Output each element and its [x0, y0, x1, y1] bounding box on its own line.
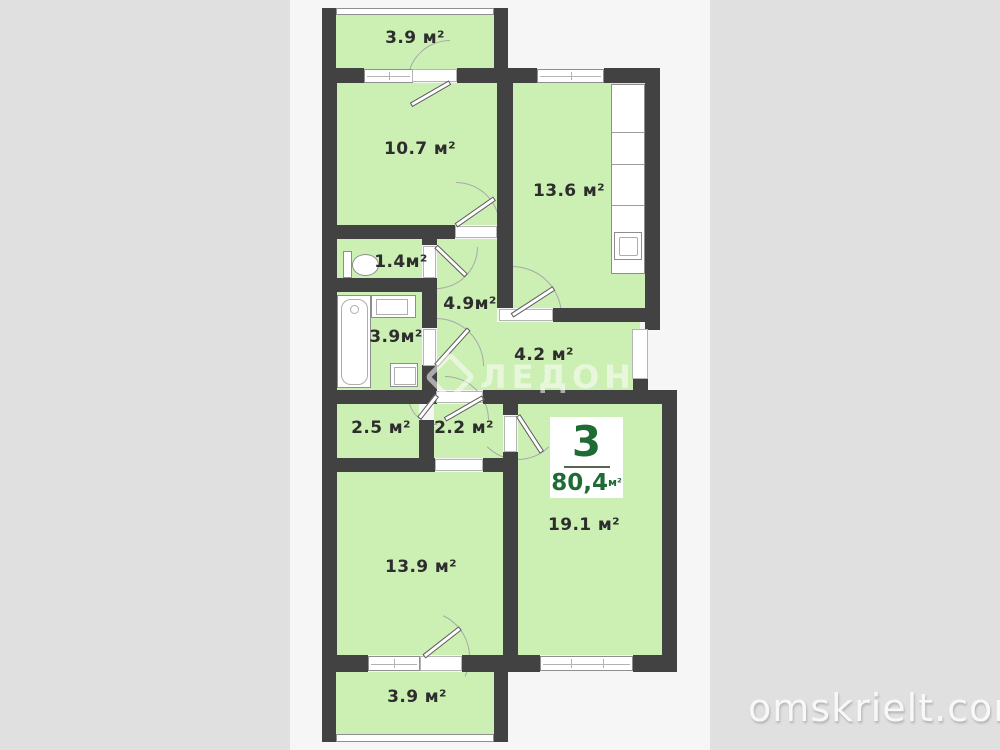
balcony-post — [322, 8, 336, 68]
door-opening — [420, 656, 462, 671]
wall — [322, 68, 337, 672]
wall — [337, 225, 455, 239]
wall — [419, 420, 434, 458]
door-opening — [435, 459, 483, 471]
balcony-post — [494, 8, 508, 68]
room-label-balcony-top: 3.9 м² — [385, 28, 445, 48]
door-opening — [455, 226, 497, 238]
balcony-glazing — [336, 734, 494, 742]
ledon-watermark-text: ЛЕДОН — [480, 358, 636, 396]
room-label-bathroom-3-9: 3.9м² — [369, 327, 422, 347]
window — [540, 656, 633, 671]
door-opening — [504, 416, 517, 452]
floor-plan-image: 3.9 м² 10.7 м² 13.6 м² 1.4м² 4.9м² 3.9м²… — [0, 0, 1000, 750]
wall — [483, 458, 503, 472]
room-label-storage-2-5: 2.5 м² — [351, 418, 411, 438]
window — [368, 656, 420, 671]
badge-area-unit: м² — [608, 476, 622, 489]
toilet-tank — [343, 251, 352, 278]
ledon-watermark: ЛЕДОН — [432, 358, 636, 396]
door-opening — [412, 69, 457, 82]
balcony-post — [494, 672, 508, 742]
kitchen-sink — [614, 232, 642, 260]
wall — [457, 68, 537, 83]
wall — [497, 83, 513, 308]
wall — [422, 278, 437, 328]
wall — [553, 308, 647, 322]
badge-total-area: 80,4м² — [550, 471, 623, 495]
badge-rooms-count: 3 — [550, 420, 623, 464]
wall — [337, 278, 422, 292]
room-label-storage-2-2: 2.2 м² — [434, 418, 494, 438]
window — [364, 69, 413, 83]
wall — [503, 452, 518, 655]
room-label-living-19-1: 19.1 м² — [548, 515, 620, 535]
room-label-balcony-bottom: 3.9 м² — [387, 687, 447, 707]
wall — [422, 225, 437, 245]
balcony-glazing — [336, 8, 494, 15]
window — [537, 69, 604, 83]
door-opening — [499, 309, 553, 321]
wall — [322, 390, 436, 404]
wall — [322, 458, 435, 472]
site-watermark: omskrielt.com — [748, 686, 1000, 730]
wall — [462, 655, 540, 672]
room-label-kitchen-13-6: 13.6 м² — [533, 181, 605, 201]
bathroom-sink — [371, 295, 416, 318]
washing-machine — [390, 363, 418, 387]
apartment-badge: 3 80,4м² — [550, 417, 623, 498]
wall — [645, 68, 660, 330]
room-label-bedroom-13-9: 13.9 м² — [385, 557, 457, 577]
room-label-wc-1-4: 1.4м² — [374, 252, 427, 272]
balcony-post — [322, 672, 336, 742]
bathtub — [337, 295, 371, 388]
ledon-logo-icon — [425, 352, 476, 403]
room-label-bedroom-10-7: 10.7 м² — [384, 139, 456, 159]
wall — [662, 390, 677, 672]
badge-area-value: 80,4 — [551, 470, 608, 496]
badge-divider — [564, 466, 610, 468]
room-label-hallway-4-9: 4.9м² — [443, 294, 496, 314]
